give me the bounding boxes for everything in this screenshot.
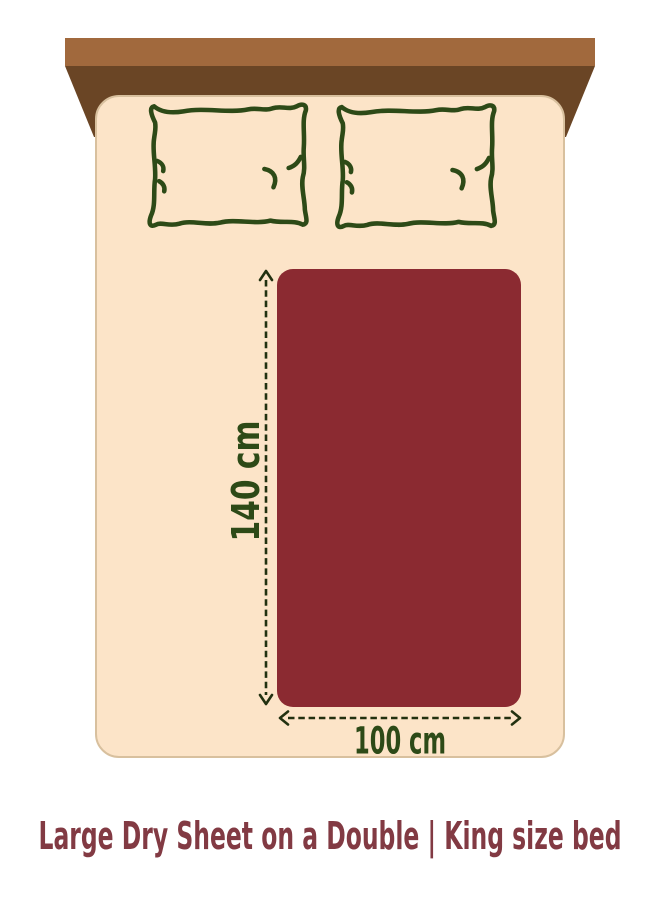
arrowhead-left-icon — [280, 712, 288, 725]
pillow-crease — [452, 170, 463, 188]
pillow-crease — [345, 162, 351, 172]
pillow-outline — [337, 105, 494, 227]
height-dimension-label: 140 cm — [224, 421, 268, 542]
pillow-crease — [289, 157, 301, 168]
pillow-crease — [157, 161, 163, 171]
headboard-top-bar — [65, 38, 595, 66]
arrowhead-up-icon — [260, 271, 272, 280]
pillow-right-icon — [334, 103, 508, 231]
dry-sheet — [277, 269, 521, 707]
caption: Large Dry Sheet on a Double | King size … — [39, 814, 622, 859]
dry-sheet-size-illustration: 140 cm 100 cm Large Dry Sheet on a Doubl… — [0, 0, 660, 900]
width-dimension-label-box: 100 cm — [330, 719, 470, 761]
width-dimension-label: 100 cm — [354, 720, 446, 762]
arrowhead-down-icon — [260, 695, 272, 704]
pillow-outline — [150, 105, 307, 226]
pillow-crease — [264, 169, 275, 187]
caption-box: Large Dry Sheet on a Double | King size … — [0, 797, 660, 873]
pillow-crease — [159, 181, 164, 191]
arrowhead-right-icon — [512, 712, 520, 725]
pillow-crease — [347, 182, 352, 192]
height-dimension-label-box: 140 cm — [210, 400, 280, 562]
pillow-crease — [477, 158, 489, 169]
pillow-left-icon — [147, 101, 319, 231]
